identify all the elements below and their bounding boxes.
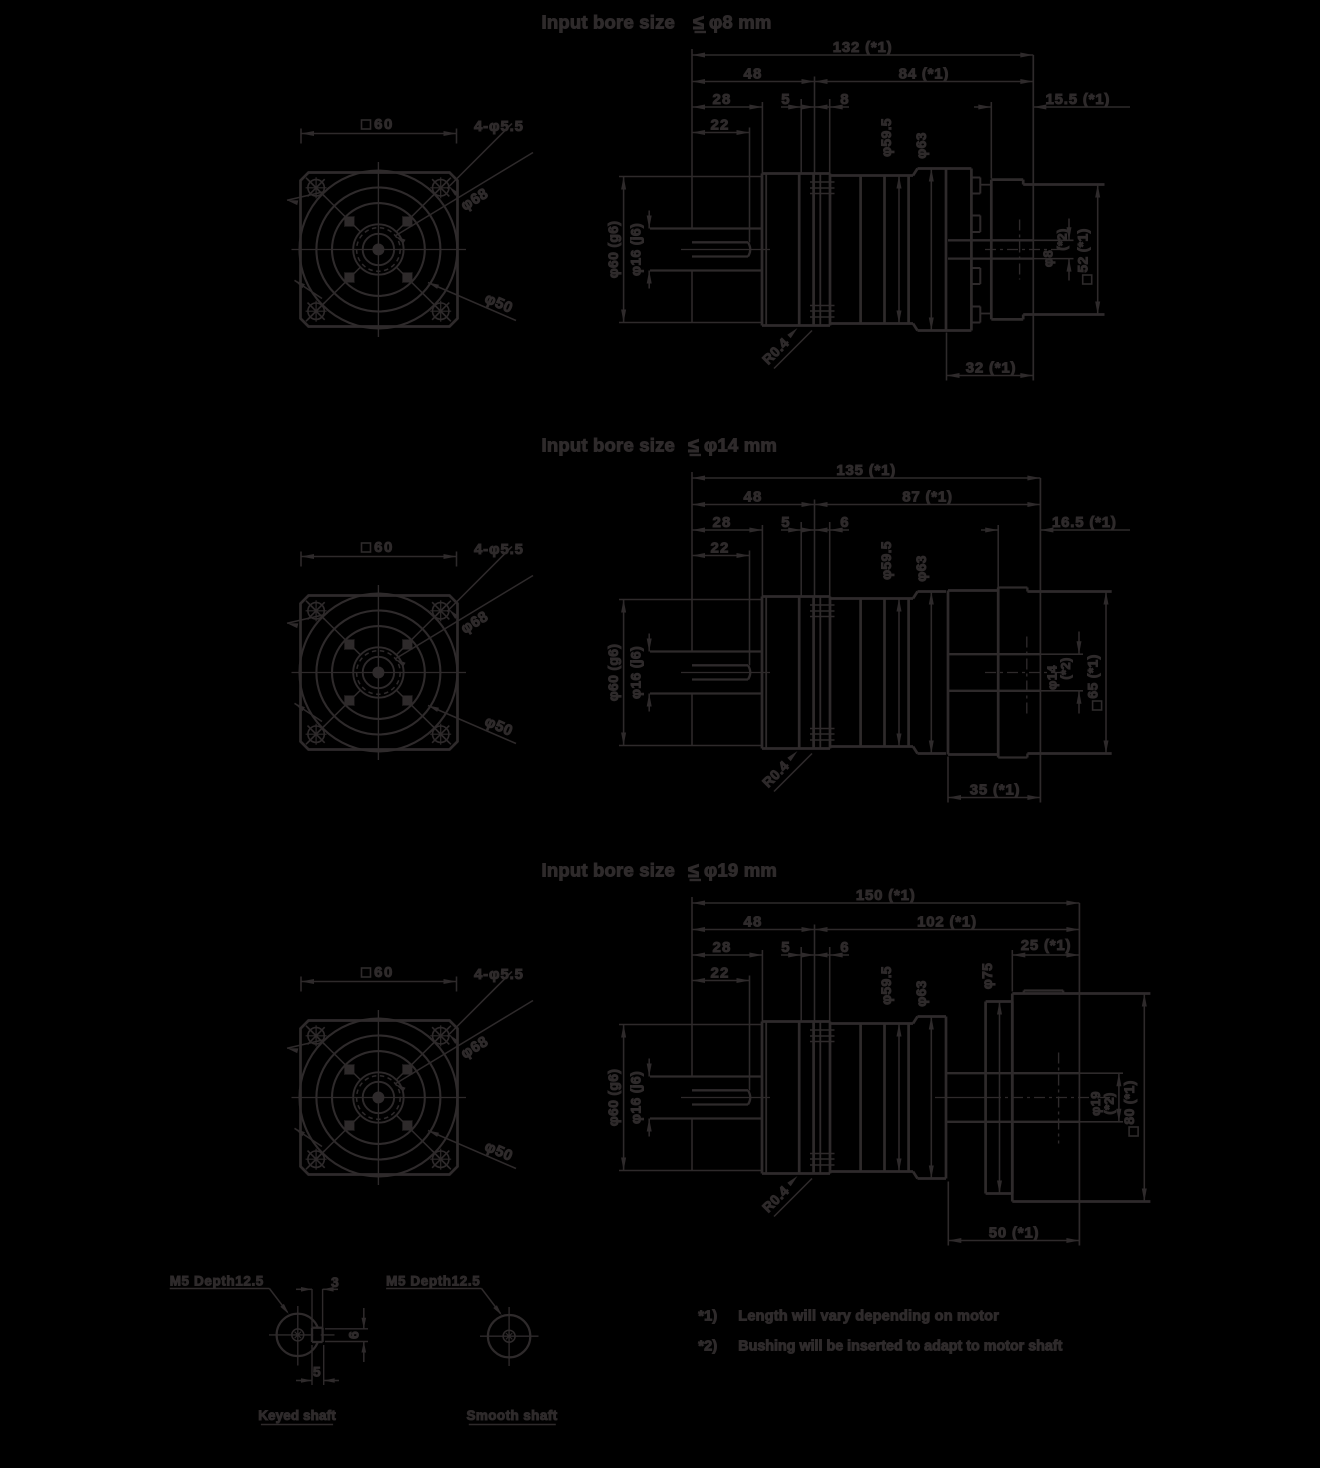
- svg-text:28: 28: [712, 939, 731, 956]
- svg-text:φ63: φ63: [913, 132, 929, 159]
- svg-text:48: 48: [743, 489, 762, 506]
- svg-text:φ63: φ63: [913, 980, 929, 1007]
- svg-text:Input bore size: Input bore size: [542, 860, 676, 881]
- svg-text:φ14 mm: φ14 mm: [704, 435, 777, 456]
- svg-text:φ59.5: φ59.5: [878, 541, 894, 580]
- svg-text:M5 Depth12.5: M5 Depth12.5: [170, 1274, 264, 1289]
- svg-text:3: 3: [331, 1274, 339, 1290]
- svg-text:φ60 (g6): φ60 (g6): [605, 1069, 621, 1127]
- svg-text:≤: ≤: [688, 860, 699, 882]
- svg-text:52 (*1): 52 (*1): [1075, 228, 1091, 272]
- svg-text:16.5 (*1): 16.5 (*1): [1052, 514, 1117, 531]
- svg-text:6: 6: [840, 939, 850, 956]
- svg-text:φ60 (g6): φ60 (g6): [605, 221, 621, 279]
- svg-text:22: 22: [710, 965, 729, 982]
- svg-text:φ16 (j6): φ16 (j6): [628, 646, 644, 699]
- svg-text:≤: ≤: [688, 435, 699, 457]
- svg-text:60: 60: [374, 964, 394, 981]
- svg-text:22: 22: [710, 540, 729, 557]
- svg-text:5: 5: [781, 91, 791, 108]
- svg-text:φ63: φ63: [913, 555, 929, 582]
- svg-text:132 (*1): 132 (*1): [833, 39, 893, 56]
- svg-text:80 (*1): 80 (*1): [1121, 1080, 1137, 1124]
- svg-text:84 (*1): 84 (*1): [899, 66, 950, 83]
- svg-text:28: 28: [712, 514, 731, 531]
- svg-text:15.5 (*1): 15.5 (*1): [1046, 91, 1111, 108]
- svg-text:φ8 mm: φ8 mm: [709, 12, 772, 33]
- svg-text:32 (*1): 32 (*1): [966, 360, 1017, 377]
- svg-text:Input bore size: Input bore size: [542, 12, 676, 33]
- svg-text:5: 5: [781, 939, 791, 956]
- svg-text:60: 60: [374, 116, 394, 133]
- svg-text:φ59.5: φ59.5: [878, 118, 894, 157]
- svg-text:60: 60: [374, 539, 394, 556]
- svg-text:φ14: φ14: [1045, 665, 1060, 690]
- svg-text:φ75: φ75: [979, 963, 995, 990]
- svg-text:*1): *1): [698, 1309, 717, 1325]
- svg-text:Smooth shaft: Smooth shaft: [466, 1408, 557, 1423]
- svg-text:(*2): (*2): [1055, 228, 1070, 250]
- svg-text:φ60 (g6): φ60 (g6): [605, 644, 621, 702]
- svg-text:102 (*1): 102 (*1): [917, 914, 977, 931]
- svg-text:8: 8: [840, 91, 850, 108]
- svg-text:5: 5: [313, 1364, 321, 1380]
- svg-text:48: 48: [743, 66, 762, 83]
- svg-text:6: 6: [346, 1331, 362, 1339]
- svg-text:Bushing will be inserted to ad: Bushing will be inserted to adapt to mot…: [738, 1339, 1062, 1355]
- svg-text:4-φ5.5: 4-φ5.5: [474, 966, 524, 983]
- svg-text:50 (*1): 50 (*1): [989, 1225, 1040, 1242]
- svg-text:(*2): (*2): [1058, 657, 1073, 679]
- svg-text:25 (*1): 25 (*1): [1021, 937, 1072, 954]
- svg-text:150 (*1): 150 (*1): [856, 887, 916, 904]
- svg-text:135 (*1): 135 (*1): [836, 462, 896, 479]
- svg-text:*2): *2): [698, 1339, 717, 1355]
- svg-text:≤: ≤: [693, 12, 704, 34]
- svg-text:48: 48: [743, 914, 762, 931]
- svg-text:φ16 (j6): φ16 (j6): [628, 1071, 644, 1124]
- svg-text:φ8: φ8: [1041, 250, 1056, 267]
- svg-text:φ19 mm: φ19 mm: [704, 860, 777, 881]
- svg-text:Input bore size: Input bore size: [542, 435, 676, 456]
- svg-text:φ59.5: φ59.5: [878, 966, 894, 1005]
- svg-text:35 (*1): 35 (*1): [970, 782, 1021, 799]
- svg-text:Keyed shaft: Keyed shaft: [258, 1408, 336, 1423]
- svg-text:(*2): (*2): [1102, 1092, 1117, 1114]
- svg-text:65 (*1): 65 (*1): [1085, 654, 1101, 698]
- svg-text:4-φ5.5: 4-φ5.5: [474, 118, 524, 135]
- svg-text:5: 5: [781, 514, 791, 531]
- svg-text:28: 28: [712, 91, 731, 108]
- svg-text:φ16 (j6): φ16 (j6): [628, 223, 644, 276]
- svg-text:Length will vary depending on: Length will vary depending on motor: [738, 1309, 999, 1325]
- svg-text:M5 Depth12.5: M5 Depth12.5: [386, 1274, 480, 1289]
- svg-text:22: 22: [710, 117, 729, 134]
- svg-text:6: 6: [840, 514, 850, 531]
- svg-text:87 (*1): 87 (*1): [902, 489, 953, 506]
- svg-text:φ19: φ19: [1088, 1091, 1103, 1116]
- svg-text:4-φ5.5: 4-φ5.5: [474, 541, 524, 558]
